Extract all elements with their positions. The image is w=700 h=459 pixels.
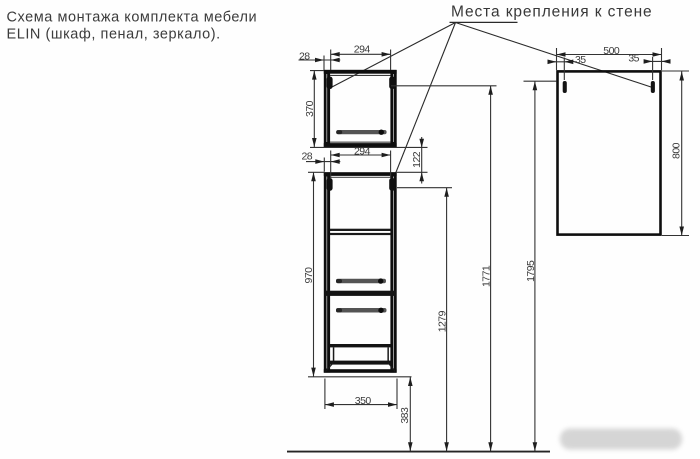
svg-text:294: 294 [354,43,371,55]
svg-text:500: 500 [603,45,620,57]
svg-text:28: 28 [302,151,313,163]
svg-text:370: 370 [304,100,316,117]
svg-text:122: 122 [411,151,423,168]
svg-text:383: 383 [399,407,411,424]
svg-text:800: 800 [671,142,683,159]
svg-text:ELIN (шкаф, пенал, зеркало).: ELIN (шкаф, пенал, зеркало). [7,27,221,43]
svg-text:350: 350 [355,395,372,407]
svg-text:970: 970 [303,267,315,284]
svg-text:35: 35 [575,54,586,66]
svg-text:35: 35 [628,53,639,65]
svg-text:Схема монтажа комплекта мебели: Схема монтажа комплекта мебели [7,10,258,26]
svg-text:1771: 1771 [481,265,493,287]
svg-text:1279: 1279 [436,310,448,332]
svg-text:28: 28 [299,50,310,62]
svg-text:1795: 1795 [525,260,537,282]
svg-text:Места крепления к стене: Места крепления к стене [451,4,653,21]
